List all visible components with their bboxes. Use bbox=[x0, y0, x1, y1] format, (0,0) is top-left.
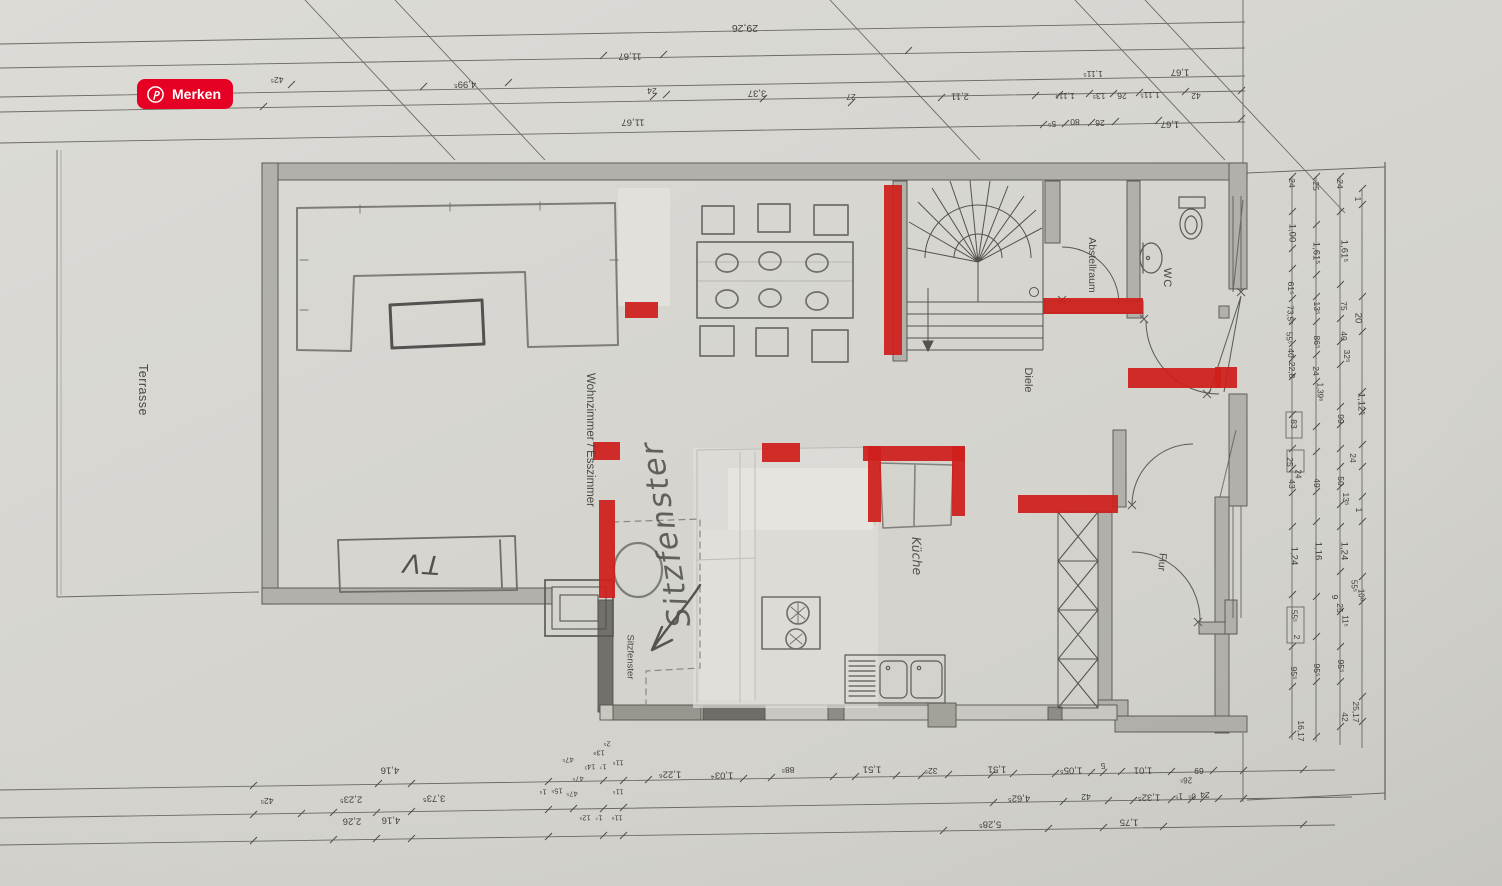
chair-sketch bbox=[812, 330, 848, 362]
floor-plan-scan: 29,2611,67243,3711,674,99⁵42⁵272,111,11⁵… bbox=[0, 0, 1502, 886]
washbasin-icon bbox=[1140, 243, 1162, 273]
room-label-wc: WC bbox=[1161, 268, 1173, 288]
chair-sketch bbox=[700, 326, 734, 356]
stairs bbox=[907, 180, 1043, 351]
door-arc bbox=[1132, 444, 1193, 505]
chair-sketch bbox=[814, 205, 848, 235]
room-label-diele: Diele bbox=[1022, 367, 1034, 392]
room-label-terrasse: Terrasse bbox=[136, 364, 150, 416]
floor-plan-linework bbox=[0, 0, 1502, 886]
kitchen-island-sketch bbox=[880, 463, 953, 528]
pinterest-save-label: Merken bbox=[172, 86, 221, 102]
chair-sketch bbox=[758, 204, 790, 232]
room-label-abstellraum: Abstellraum bbox=[1086, 237, 1098, 292]
pinterest-save-button[interactable]: Merken bbox=[137, 79, 233, 109]
room-label-wohnzimmer: Wohnzimmer / Esszimmer bbox=[584, 373, 596, 507]
room-label-flur: Flur bbox=[1155, 552, 1169, 571]
dining-table-sketch bbox=[697, 204, 853, 362]
chair-sketch bbox=[702, 206, 734, 234]
chair-sketch bbox=[756, 328, 788, 356]
door-arc bbox=[1146, 321, 1219, 394]
chimney-hatch bbox=[1058, 512, 1098, 708]
handwritten-tv-label: TV bbox=[399, 547, 441, 580]
pinterest-icon bbox=[146, 85, 165, 104]
sofa-sketch bbox=[297, 203, 618, 351]
toilet-icon bbox=[1179, 197, 1205, 239]
label-sitzfenster-window: Sitzfenster bbox=[625, 635, 636, 680]
room-label-kueche: Küche bbox=[909, 537, 925, 576]
coffee-table-sketch bbox=[390, 300, 484, 348]
